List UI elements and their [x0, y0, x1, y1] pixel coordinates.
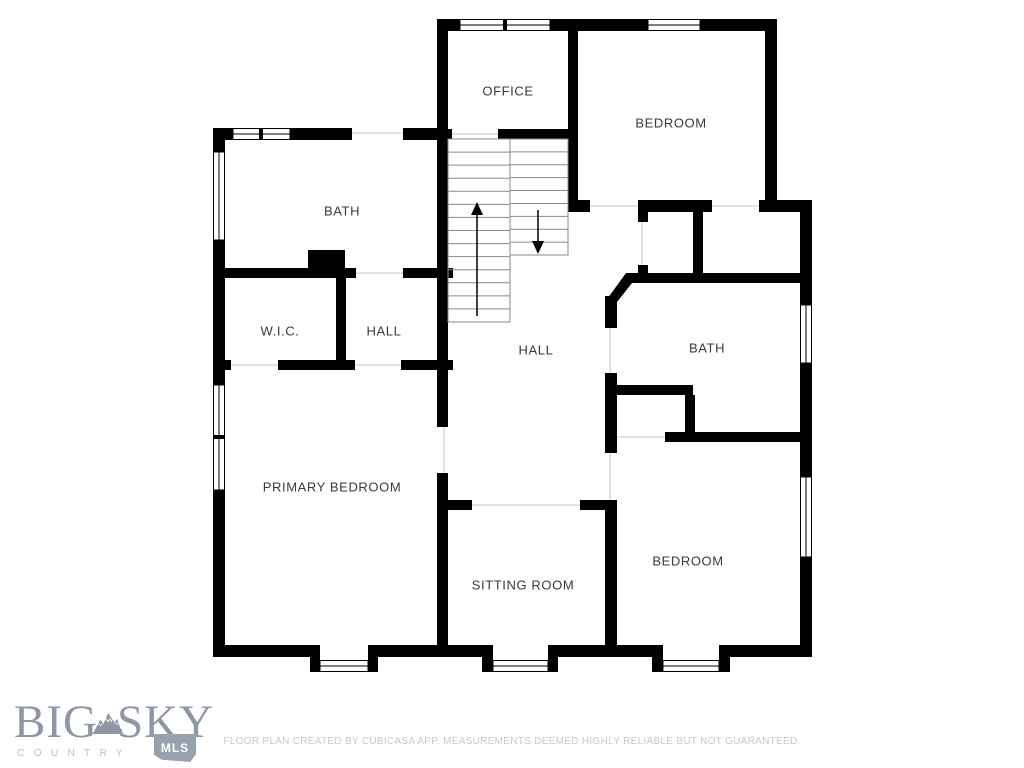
room-label-wic: W.I.C.: [261, 324, 300, 339]
room-label-bedroom-top: BEDROOM: [635, 116, 706, 131]
room-label-bedroom-bottom: BEDROOM: [652, 554, 723, 569]
room-label-primary-bedroom: PRIMARY BEDROOM: [263, 480, 402, 495]
big-sky-logo: BIG SKY COUNTRY MLS: [14, 700, 214, 764]
room-label-hall-main: HALL: [519, 343, 554, 358]
room-label-hall-small: HALL: [367, 324, 402, 339]
room-label-sitting-room: SITTING ROOM: [472, 578, 575, 593]
room-label-bath-right: BATH: [689, 341, 725, 356]
floorplan-walls-graphic: [0, 0, 1024, 768]
logo-country-text: COUNTRY: [17, 747, 132, 759]
footer-disclaimer: FLOOR PLAN CREATED BY CUBICASA APP. MEAS…: [0, 736, 1024, 747]
room-label-office: OFFICE: [482, 84, 533, 99]
floor-plan-page: OFFICE BEDROOM BATH W.I.C. HALL HALL BAT…: [0, 0, 1024, 768]
room-label-bath-upper-left: BATH: [324, 204, 360, 219]
